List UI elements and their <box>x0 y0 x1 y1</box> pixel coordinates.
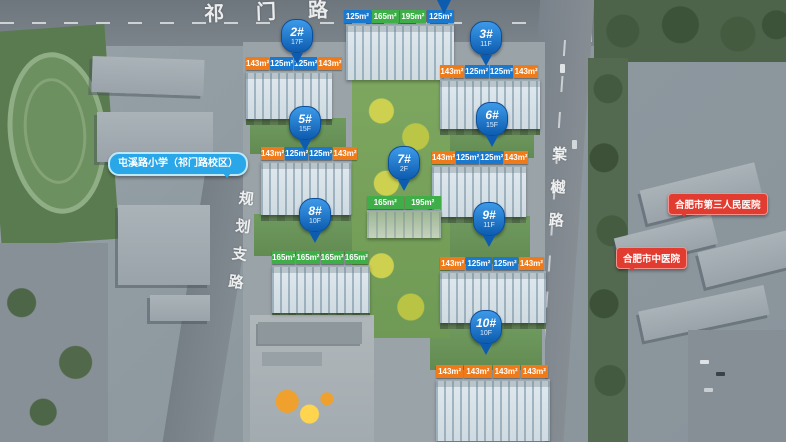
building-6-unit-labels: 143m² 125m² 125m² 143m² <box>432 151 524 164</box>
pin-balloon: 2# 17F <box>281 19 313 53</box>
pin-tail <box>299 140 311 151</box>
pin-building-number: 3# <box>479 28 492 41</box>
pin-building-number: 7# <box>397 153 410 166</box>
building-9-pin[interactable]: 9# 11F <box>474 202 504 247</box>
unit-area-chip: 125m² <box>490 65 514 78</box>
pin-floor-count: 17F <box>291 39 303 47</box>
unit-area-chip: 143m² <box>464 365 491 378</box>
pin-balloon: 3# 11F <box>470 21 502 55</box>
pin-balloon: 6# 15F <box>476 102 508 136</box>
hospital-third-label-bubble[interactable]: 合肥市第三人民医院 <box>668 193 768 215</box>
unit-area-chip: 125m² <box>480 151 503 164</box>
pin-tail <box>486 136 498 147</box>
building-10-pin[interactable]: 10# 10F <box>471 310 501 355</box>
unit-area-chip: 143m² <box>519 257 544 270</box>
car <box>704 388 713 392</box>
pin-building-number: 6# <box>485 109 498 122</box>
pin-building-number: 9# <box>482 209 495 222</box>
building-7-structure <box>367 210 441 238</box>
pin-tail <box>483 236 495 247</box>
building-7-unit-labels: 165m² 195m² <box>367 196 441 209</box>
pin-tail <box>291 53 303 64</box>
school-building <box>150 295 210 321</box>
building-10-unit-labels: 143m² 143m² 143m² 143m² <box>436 365 548 378</box>
pin-tail <box>398 180 410 191</box>
building-5-pin[interactable]: 5# 15F <box>290 106 320 151</box>
pin-floor-count: 11F <box>483 222 495 230</box>
unit-area-chip: 165m² <box>321 251 344 264</box>
pin-balloon: 7# 2F <box>388 146 420 180</box>
hospital-tcm-label-bubble[interactable]: 合肥市中医院 <box>616 247 687 269</box>
unit-area-chip: 143m² <box>440 65 464 78</box>
unit-area-chip: 125m² <box>456 151 479 164</box>
parking-lot <box>688 330 786 442</box>
pin-building-number: 2# <box>290 26 303 39</box>
unit-area-chip: 125m² <box>493 257 518 270</box>
building-1-structure <box>346 24 454 80</box>
building-3-pin[interactable]: 3# 11F <box>471 21 501 66</box>
unit-area-chip: 143m² <box>246 57 269 70</box>
unit-area-chip: 143m² <box>432 151 455 164</box>
building-1-pin-tail[interactable] <box>437 0 451 14</box>
school-building <box>118 205 210 285</box>
car <box>560 64 565 73</box>
pin-balloon: 5# 15F <box>289 106 321 140</box>
kindergarten-roof <box>262 352 322 366</box>
unit-area-chip: 143m² <box>521 365 548 378</box>
kindergarten-roof <box>258 322 362 344</box>
car <box>716 372 725 376</box>
unit-area-chip: 195m² <box>405 196 442 209</box>
building-8-unit-labels: 165m² 165m² 165m² 165m² <box>272 251 368 264</box>
building-8-structure <box>272 265 370 313</box>
pin-building-number: 10# <box>476 317 496 330</box>
pin-tail <box>480 344 492 355</box>
pin-floor-count: 15F <box>486 122 498 130</box>
pin-building-number: 8# <box>308 205 321 218</box>
pin-floor-count: 2F <box>400 166 408 174</box>
unit-area-chip: 165m² <box>272 251 295 264</box>
pin-balloon: 9# 11F <box>473 202 505 236</box>
unit-area-chip: 195m² <box>400 10 427 23</box>
unit-area-chip: 143m² <box>493 365 520 378</box>
unit-area-chip: 125m² <box>465 65 489 78</box>
pin-tail <box>309 232 321 243</box>
pin-floor-count: 11F <box>480 41 492 49</box>
site-aerial-view: 125m² 165m² 195m² 125m² 143m² 125m² 125m… <box>0 0 786 442</box>
building-7-pin[interactable]: 7# 2F <box>389 146 419 191</box>
school-building <box>91 56 204 96</box>
unit-area-chip: 143m² <box>318 57 341 70</box>
building-8-pin[interactable]: 8# 10F <box>300 198 330 243</box>
school-label-bubble[interactable]: 屯溪路小学（祁门路校区） <box>108 152 248 176</box>
left-green-area <box>0 243 108 442</box>
unit-area-chip: 143m² <box>261 147 284 160</box>
unit-area-chip: 143m² <box>436 365 463 378</box>
car <box>700 360 709 364</box>
pin-floor-count: 10F <box>309 218 321 226</box>
unit-area-chip: 165m² <box>296 251 319 264</box>
building-6-pin[interactable]: 6# 15F <box>477 102 507 147</box>
pin-tail <box>480 55 492 66</box>
unit-area-chip: 143m² <box>514 65 538 78</box>
pin-floor-count: 10F <box>480 330 492 338</box>
unit-area-chip: 125m² <box>466 257 491 270</box>
building-9-unit-labels: 143m² 125m² 125m² 143m² <box>440 257 544 270</box>
building-2-pin[interactable]: 2# 17F <box>282 19 312 64</box>
pin-building-number: 5# <box>298 113 311 126</box>
unit-area-chip: 143m² <box>333 147 356 160</box>
pin-balloon: 8# 10F <box>299 198 331 232</box>
building-10-structure <box>436 379 550 441</box>
unit-area-chip: 165m² <box>367 196 404 209</box>
building-3-unit-labels: 143m² 125m² 125m² 143m² <box>440 65 538 78</box>
unit-area-chip: 143m² <box>504 151 527 164</box>
pin-floor-count: 15F <box>299 126 311 134</box>
unit-area-chip: 165m² <box>372 10 399 23</box>
trees-top-right <box>594 0 786 62</box>
car <box>572 140 577 149</box>
unit-area-chip: 143m² <box>440 257 465 270</box>
pin-balloon: 10# 10F <box>470 310 502 344</box>
unit-area-chip: 165m² <box>345 251 368 264</box>
